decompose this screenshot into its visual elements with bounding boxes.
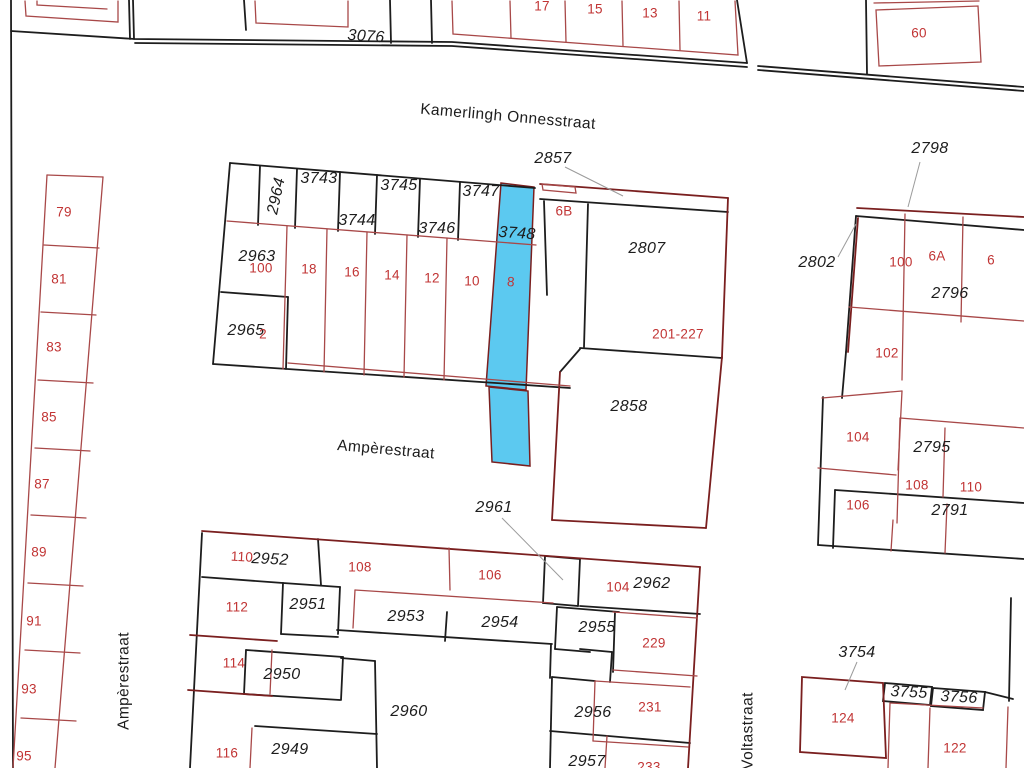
street-label-kamerlingh-onnesstraat: Kamerlingh Onnesstraat xyxy=(420,102,597,133)
house-number-110: 110 xyxy=(230,550,253,565)
house-number-6b: 6B xyxy=(555,204,572,218)
house-number-102: 102 xyxy=(875,346,898,360)
street-label-voltastraat: Voltastraat xyxy=(740,692,756,768)
house-number-201-227: 201-227 xyxy=(652,327,704,341)
parcel-label-2964: 2964 xyxy=(265,176,288,216)
house-number-108: 108 xyxy=(905,478,928,492)
house-number-116: 116 xyxy=(216,746,238,760)
parcel-label-2802: 2802 xyxy=(798,255,835,271)
parcel-label-3744: 3744 xyxy=(338,213,375,229)
parcel-label-2953: 2953 xyxy=(387,609,424,625)
house-number-95: 95 xyxy=(16,749,32,763)
house-number-100: 100 xyxy=(249,261,272,275)
house-number-108: 108 xyxy=(348,560,371,574)
parcel-label-2950: 2950 xyxy=(263,667,300,683)
map-labels: Kamerlingh OnnesstraatAmpèrestraatAmpère… xyxy=(0,0,1024,768)
street-label-amp-restraat: Ampèrestraat xyxy=(337,438,436,462)
house-number-104: 104 xyxy=(606,580,629,594)
house-number-100: 100 xyxy=(889,255,912,269)
house-number-6: 6 xyxy=(987,253,995,267)
house-number-18: 18 xyxy=(301,262,317,276)
house-number-79: 79 xyxy=(56,205,72,219)
house-number-15: 15 xyxy=(587,2,603,16)
parcel-label-3754: 3754 xyxy=(838,645,875,661)
parcel-label-2798: 2798 xyxy=(911,141,948,157)
house-number-114: 114 xyxy=(223,656,245,670)
house-number-229: 229 xyxy=(642,636,665,650)
house-number-87: 87 xyxy=(34,477,50,491)
parcel-label-3755: 3755 xyxy=(890,684,928,702)
house-number-11: 11 xyxy=(697,9,712,23)
parcel-label-2795: 2795 xyxy=(913,440,950,456)
parcel-label-2956: 2956 xyxy=(574,705,611,721)
house-number-2: 2 xyxy=(259,327,267,341)
house-number-10: 10 xyxy=(464,274,480,288)
parcel-label-2952: 2952 xyxy=(251,551,289,569)
parcel-label-3076: 3076 xyxy=(347,28,385,47)
house-number-12: 12 xyxy=(424,271,440,285)
house-number-104: 104 xyxy=(846,430,869,444)
house-number-231: 231 xyxy=(638,700,661,714)
parcel-label-3747: 3747 xyxy=(462,184,499,200)
parcel-label-2796: 2796 xyxy=(931,286,968,302)
parcel-label-2962: 2962 xyxy=(633,576,670,592)
parcel-label-3746: 3746 xyxy=(418,221,455,237)
house-number-6a: 6A xyxy=(928,249,945,263)
parcel-label-2949: 2949 xyxy=(271,742,308,758)
house-number-110: 110 xyxy=(960,480,982,494)
house-number-85: 85 xyxy=(41,410,57,424)
street-label-amp-restraat: Ampèrestraat xyxy=(116,632,132,730)
house-number-106: 106 xyxy=(478,568,501,582)
parcel-label-2954: 2954 xyxy=(481,615,518,631)
parcel-label-3756: 3756 xyxy=(940,689,978,707)
house-number-106: 106 xyxy=(846,498,869,512)
parcel-label-3745: 3745 xyxy=(380,178,417,194)
parcel-label-2791: 2791 xyxy=(931,503,968,519)
cadastral-map[interactable]: Kamerlingh OnnesstraatAmpèrestraatAmpère… xyxy=(0,0,1024,768)
house-number-112: 112 xyxy=(226,600,248,614)
parcel-label-3743: 3743 xyxy=(300,171,337,187)
house-number-91: 91 xyxy=(26,614,42,628)
house-number-122: 122 xyxy=(943,741,966,755)
parcel-label-3748: 3748 xyxy=(498,225,536,244)
house-number-93: 93 xyxy=(21,682,37,696)
house-number-14: 14 xyxy=(384,268,400,282)
parcel-label-2957: 2957 xyxy=(568,754,605,768)
house-number-233: 233 xyxy=(637,760,660,768)
house-number-8: 8 xyxy=(507,275,516,289)
parcel-label-2857: 2857 xyxy=(534,151,571,167)
house-number-124: 124 xyxy=(831,711,854,725)
parcel-label-2951: 2951 xyxy=(289,597,326,613)
parcel-label-2960: 2960 xyxy=(390,704,427,720)
house-number-81: 81 xyxy=(51,272,67,286)
parcel-label-2961: 2961 xyxy=(475,500,512,516)
parcel-label-2807: 2807 xyxy=(628,241,665,257)
house-number-60: 60 xyxy=(911,26,927,40)
house-number-83: 83 xyxy=(46,340,62,354)
parcel-label-2858: 2858 xyxy=(610,399,647,415)
house-number-89: 89 xyxy=(31,545,47,559)
house-number-17: 17 xyxy=(534,0,550,13)
house-number-13: 13 xyxy=(642,6,658,20)
house-number-16: 16 xyxy=(344,265,360,279)
parcel-label-2955: 2955 xyxy=(578,620,615,636)
